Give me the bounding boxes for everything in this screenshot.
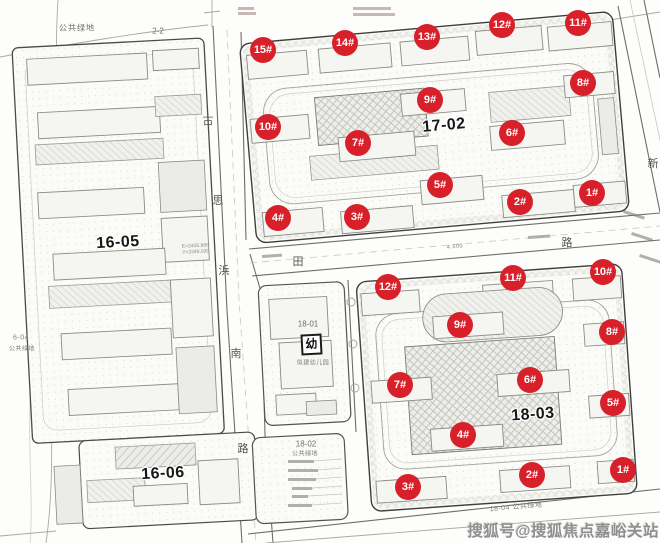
building-marker-17-02-9: 9# <box>417 87 443 113</box>
building-marker-18-03-4: 4# <box>450 422 476 448</box>
building-marker-17-02-8: 8# <box>570 70 596 96</box>
middle_road-char-1: 路 <box>562 234 573 250</box>
green-space-label-18-02: 公共绿地 <box>292 449 318 458</box>
building-marker-17-02-3: 3# <box>344 204 370 230</box>
site-plan-linework <box>0 0 660 543</box>
west_road-char-4: 路 <box>238 440 249 456</box>
building-marker-18-03-5: 5# <box>600 390 626 416</box>
section-label: 2-2 <box>152 27 164 36</box>
building-marker-17-02-13: 13# <box>414 24 440 50</box>
building-marker-18-03-12: 12# <box>375 274 401 300</box>
west_road-char-1: 思 <box>213 192 224 208</box>
survey-coordinates: E=2405.988 Y=2349.030 <box>182 242 210 255</box>
building-marker-17-02-10: 10# <box>255 114 281 140</box>
building-marker-18-03-1: 1# <box>610 457 636 483</box>
building-marker-18-03-2: 2# <box>519 462 545 488</box>
parcel-label-16-06: 16-06 <box>141 464 185 484</box>
building-marker-18-03-11: 11# <box>500 265 526 291</box>
building-marker-18-03-8: 8# <box>599 319 625 345</box>
building-marker-18-03-10: 10# <box>590 259 616 285</box>
west_road-char-3: 南 <box>231 345 242 361</box>
kindergarten-symbol: 幼 <box>300 333 322 355</box>
parcel-label-18-03: 18-03 <box>511 405 556 426</box>
building-marker-17-02-7: 7# <box>345 130 371 156</box>
site-plan: 公共绿地 2-2 16-05 16-06 17-02 18-03 E=2405.… <box>0 0 660 543</box>
parcel-label-17-02: 17-02 <box>422 115 467 137</box>
building-marker-17-02-12: 12# <box>489 12 515 38</box>
building-marker-18-03-9: 9# <box>447 312 473 338</box>
building-marker-17-02-2: 2# <box>507 189 533 215</box>
watermark: 搜狐号@搜狐焦点嘉峪关站 <box>467 519 659 541</box>
green-space-label-6-04: 6-04 <box>13 335 29 342</box>
parcel-label-18-02: 18-02 <box>296 440 316 449</box>
building-marker-17-02-1: 1# <box>579 180 605 206</box>
green-space-label-6-04-sub: 公共绿地 <box>9 344 35 353</box>
building-marker-18-03-3: 3# <box>395 474 421 500</box>
building-marker-17-02-11: 11# <box>565 10 591 36</box>
building-marker-17-02-5: 5# <box>427 172 453 198</box>
building-marker-17-02-14: 14# <box>332 30 358 56</box>
parcel-label-18-01: 18-01 <box>298 320 318 329</box>
building-marker-17-02-4: 4# <box>265 205 291 231</box>
kindergarten-note: 拟建幼儿园 <box>297 358 330 367</box>
building-marker-18-03-6: 6# <box>517 367 543 393</box>
building-marker-17-02-6: 6# <box>499 120 525 146</box>
west_road-char-0: 古 <box>203 112 214 128</box>
parcel-label-16-05: 16-05 <box>96 233 140 253</box>
east_road-char-0: 新 <box>648 155 659 171</box>
green-space-label-top: 公共绿地 <box>59 23 95 34</box>
middle_road-char-0: 田 <box>293 253 304 269</box>
west_road-char-2: 浜 <box>219 262 230 278</box>
building-marker-17-02-15: 15# <box>250 37 276 63</box>
building-marker-18-03-7: 7# <box>387 372 413 398</box>
